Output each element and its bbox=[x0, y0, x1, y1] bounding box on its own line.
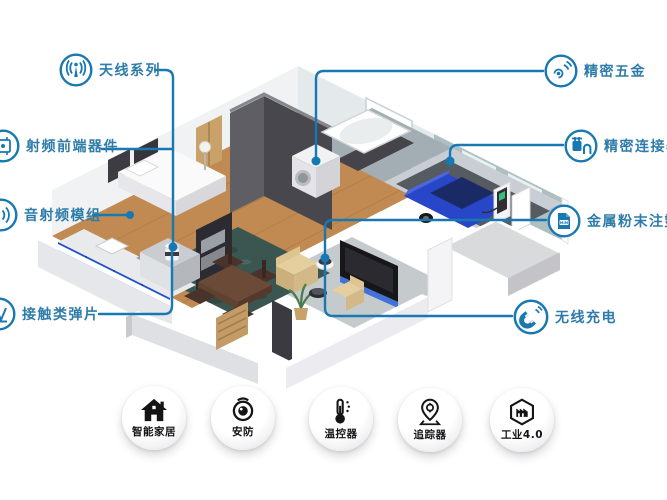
callout-label: 金属粉末注塑成 bbox=[587, 211, 667, 231]
magnet-waves-icon bbox=[513, 299, 549, 335]
callout-rf-front-end: 射频前端器件 bbox=[0, 129, 119, 163]
callout-label: 射频前端器件 bbox=[26, 136, 119, 156]
callout-label: 无线充电 bbox=[555, 307, 617, 327]
plug-connector-icon bbox=[564, 129, 598, 163]
badge-security: 安防 bbox=[211, 386, 275, 450]
callout-label: 精密连接器 bbox=[604, 136, 667, 156]
callout-precision-hardware: 精密五金 bbox=[544, 54, 646, 88]
badge-smart-home: 智能家居 bbox=[122, 386, 186, 450]
mim-icon-text: MIM bbox=[560, 221, 569, 225]
callout-label: 接触类弹片 bbox=[22, 304, 100, 324]
badge-industry-4-0: 工业4.0 bbox=[490, 388, 554, 452]
spring-contact-icon bbox=[0, 297, 16, 331]
location-pin-icon bbox=[416, 398, 444, 426]
badge-tracker: 追踪器 bbox=[398, 388, 462, 452]
badge-label: 智能家居 bbox=[132, 424, 176, 439]
security-camera-icon bbox=[229, 397, 257, 423]
callout-label: 精密五金 bbox=[584, 61, 646, 81]
mim-document-icon: MIM bbox=[547, 204, 581, 238]
callout-label: 天线系列 bbox=[99, 60, 161, 80]
callout-precision-connector: 精密连接器 bbox=[564, 129, 667, 163]
factory-hexagon-icon bbox=[507, 398, 537, 426]
callout-wireless-charging: 无线充电 bbox=[513, 299, 617, 335]
antenna-icon bbox=[59, 53, 93, 87]
badge-label: 安防 bbox=[232, 424, 254, 439]
badge-thermostat: 温控器 bbox=[309, 387, 373, 451]
smart-home-infographic: 天线系列 射频前端器件 音射频模组 接触类弹片 bbox=[0, 0, 667, 500]
callout-audio-rf: 音射频模组 bbox=[0, 198, 102, 232]
callout-contact-spring: 接触类弹片 bbox=[0, 297, 100, 331]
badge-label: 温控器 bbox=[325, 426, 358, 441]
thermometer-icon bbox=[328, 397, 354, 425]
callout-mim: MIM 金属粉末注塑成 bbox=[547, 204, 667, 238]
audio-waves-icon bbox=[0, 198, 18, 232]
ramp bbox=[444, 220, 560, 296]
callout-antenna: 天线系列 bbox=[59, 53, 161, 87]
floor-lamp bbox=[200, 142, 211, 153]
coil-spiral-icon bbox=[544, 54, 578, 88]
front-door bbox=[272, 300, 292, 362]
callout-label: 音射频模组 bbox=[24, 205, 102, 225]
rf-chip-icon bbox=[0, 129, 20, 163]
house-icon bbox=[139, 397, 169, 423]
badge-label: 工业4.0 bbox=[501, 427, 543, 442]
badge-label: 追踪器 bbox=[414, 427, 447, 442]
